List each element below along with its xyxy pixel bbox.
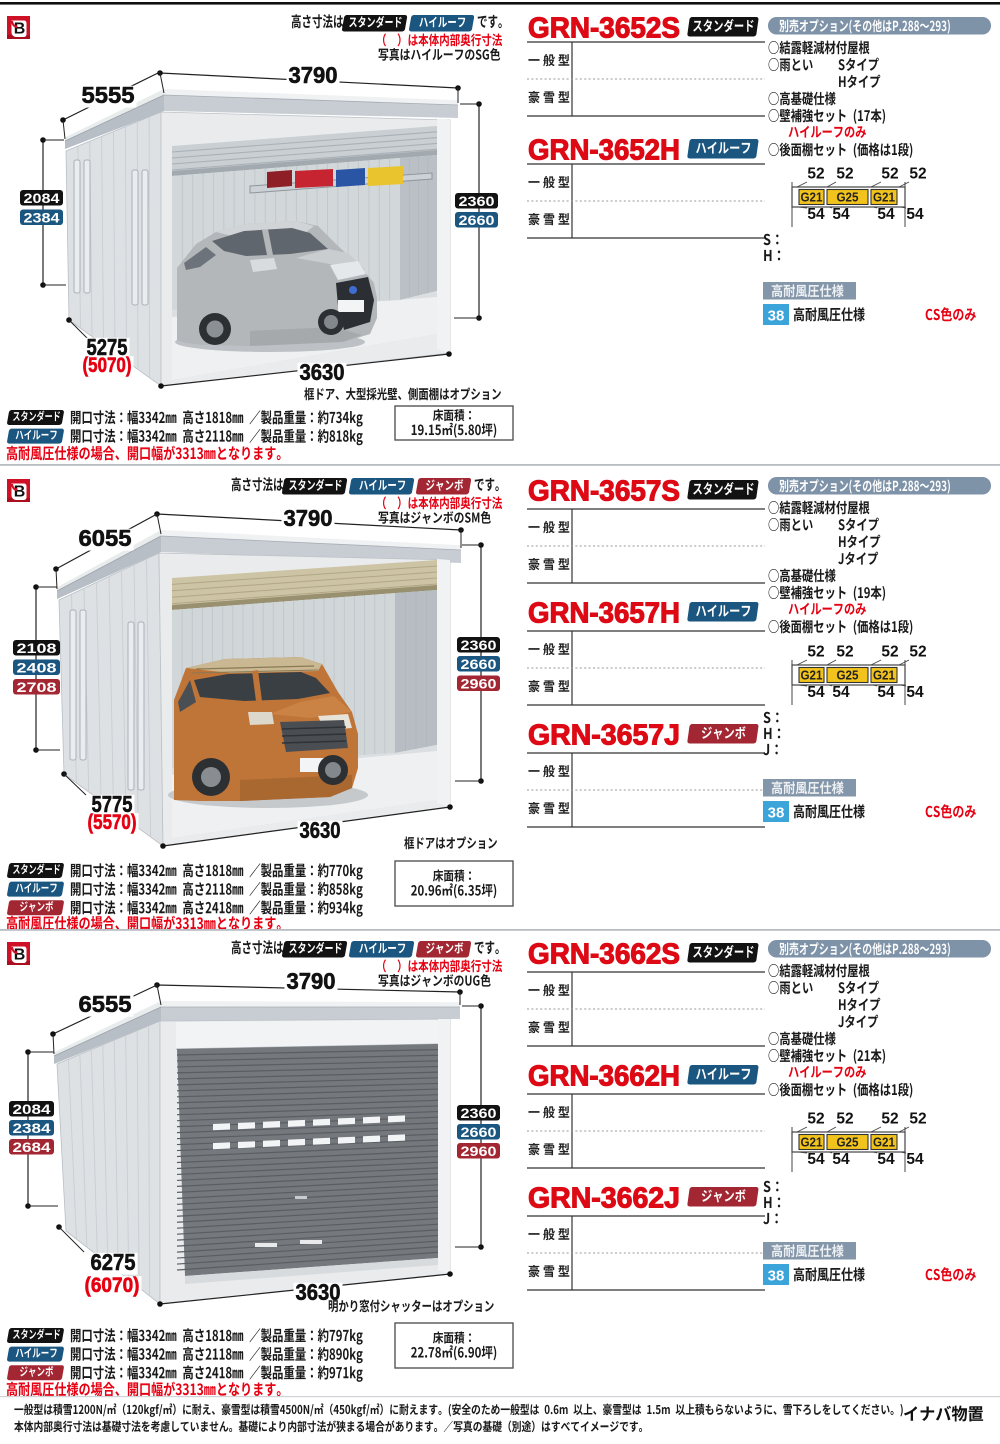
svg-text:2660: 2660 [461, 1124, 497, 1140]
svg-text:3790: 3790 [287, 968, 336, 994]
svg-text:52: 52 [881, 166, 898, 183]
svg-text:5555: 5555 [82, 82, 135, 108]
svg-text:54: 54 [906, 684, 924, 701]
svg-text:GRN-3652S: GRN-3652S [528, 13, 680, 45]
svg-text:G21: G21 [801, 191, 823, 205]
svg-text:54: 54 [832, 206, 850, 223]
svg-text:3790: 3790 [289, 62, 338, 88]
svg-text:G21: G21 [873, 669, 895, 683]
svg-text:2360: 2360 [461, 637, 497, 653]
svg-text:2360: 2360 [461, 1105, 497, 1121]
svg-text:GRN-3662J: GRN-3662J [528, 1183, 680, 1215]
svg-text:GRN-3657S: GRN-3657S [528, 476, 680, 508]
svg-text:54: 54 [832, 1151, 850, 1168]
svg-text:2408: 2408 [17, 659, 57, 675]
svg-text:52: 52 [807, 166, 824, 183]
svg-text:GRN-3657H: GRN-3657H [528, 598, 680, 630]
svg-text:38: 38 [768, 805, 785, 822]
svg-text:52: 52 [836, 166, 853, 183]
svg-text:2684: 2684 [13, 1139, 51, 1155]
svg-text:2384: 2384 [13, 1120, 51, 1136]
svg-text:2960: 2960 [461, 675, 497, 691]
svg-text:2708: 2708 [17, 679, 57, 695]
svg-text:54: 54 [906, 206, 924, 223]
svg-text:G21: G21 [801, 1136, 823, 1150]
svg-text:52: 52 [881, 1111, 898, 1128]
svg-text:2660: 2660 [461, 656, 497, 672]
svg-text:52: 52 [909, 166, 926, 183]
svg-text:54: 54 [807, 206, 825, 223]
svg-text:54: 54 [807, 1151, 825, 1168]
svg-text:38: 38 [768, 308, 785, 325]
svg-text:3790: 3790 [284, 505, 333, 531]
svg-text:2384: 2384 [24, 209, 60, 225]
svg-text:B: B [14, 947, 26, 964]
svg-text:54: 54 [877, 206, 895, 223]
svg-text:52: 52 [881, 644, 898, 661]
svg-text:52: 52 [807, 644, 824, 661]
svg-text:52: 52 [836, 644, 853, 661]
svg-text:52: 52 [807, 1111, 824, 1128]
svg-text:(5070): (5070) [83, 354, 132, 377]
svg-text:G21: G21 [873, 1136, 895, 1150]
svg-text:54: 54 [877, 1151, 895, 1168]
svg-text:54: 54 [877, 684, 895, 701]
svg-text:2660: 2660 [459, 212, 495, 228]
svg-text:G25: G25 [837, 1136, 859, 1150]
svg-text:(6070): (6070) [85, 1274, 140, 1297]
svg-text:38: 38 [768, 1268, 785, 1285]
svg-text:6555: 6555 [79, 991, 132, 1017]
svg-text:54: 54 [832, 684, 850, 701]
svg-text:54: 54 [906, 1151, 924, 1168]
svg-text:2084: 2084 [24, 190, 60, 206]
svg-text:GRN-3657J: GRN-3657J [528, 720, 680, 752]
svg-text:52: 52 [909, 644, 926, 661]
svg-text:(5570): (5570) [88, 811, 137, 834]
svg-text:B: B [14, 21, 26, 38]
svg-text:B: B [14, 484, 26, 501]
svg-text:2084: 2084 [13, 1101, 51, 1117]
svg-text:2108: 2108 [17, 640, 57, 656]
svg-text:GRN-3652H: GRN-3652H [528, 135, 680, 167]
svg-text:2960: 2960 [461, 1143, 497, 1159]
svg-text:6055: 6055 [79, 525, 132, 551]
svg-text:G25: G25 [837, 669, 859, 683]
svg-text:3630: 3630 [300, 359, 345, 385]
svg-text:G21: G21 [801, 669, 823, 683]
svg-text:GRN-3662H: GRN-3662H [528, 1061, 680, 1093]
svg-text:6275: 6275 [91, 1249, 136, 1275]
svg-text:G21: G21 [873, 191, 895, 205]
svg-text:3630: 3630 [300, 817, 341, 843]
svg-text:54: 54 [807, 684, 825, 701]
svg-text:GRN-3662S: GRN-3662S [528, 939, 680, 971]
svg-text:2360: 2360 [459, 193, 495, 209]
svg-text:G25: G25 [837, 191, 859, 205]
svg-text:52: 52 [836, 1111, 853, 1128]
svg-text:52: 52 [909, 1111, 926, 1128]
